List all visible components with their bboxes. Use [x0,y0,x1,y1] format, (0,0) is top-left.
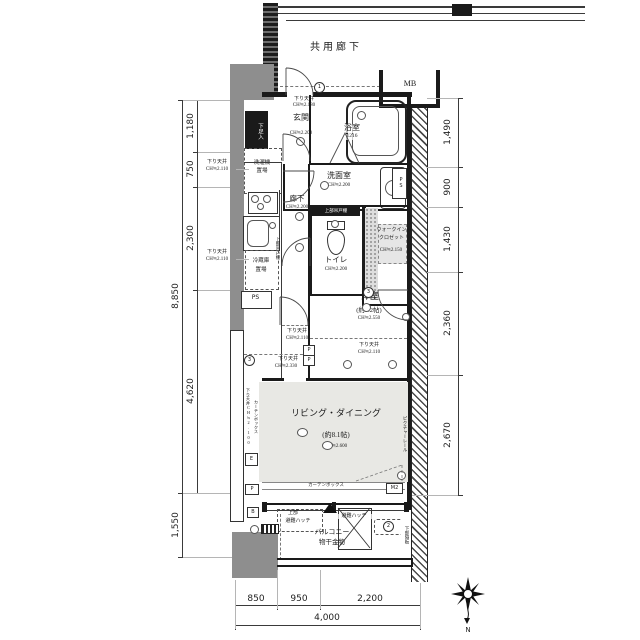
callout-b-soffit: 下り天井 [198,250,236,255]
washroom-wall [283,164,285,211]
downlight [362,303,371,312]
wic-stipple [365,208,378,299]
dim-left-1180: 1,180 [186,106,196,146]
balcony-railing-cap [411,558,413,567]
dim-bottom-950: 950 [278,594,320,604]
wall-left-lower [230,330,244,522]
mark-e-box: E [245,453,258,466]
corridor-line [278,13,585,14]
bath-drain [357,111,366,120]
mark-p: P [250,486,253,492]
dim-extension [198,152,230,153]
balcony-railing [277,558,413,560]
circled-mark-3: 3 [244,355,255,366]
balcony-railing [277,565,413,567]
downlight [320,181,329,190]
upper-hatch-label-2: 避難ハッチ [278,519,318,524]
mb-wall [436,70,440,108]
drain-grate [261,524,279,534]
dim-right-1490: 1,490 [443,112,453,152]
living-soffit-line [244,354,308,355]
toilet-label: トイレ [321,256,351,264]
dim-extension [277,570,278,609]
dim-line-left-outer [182,100,183,557]
living-size: (約8.1帖) [310,432,362,440]
washer-label-2: 置場 [244,169,280,175]
toilet-ch: CH≒2.200 [317,267,355,272]
dim-bottom-4000: 4,000 [307,613,347,623]
mark-p2: P [307,357,310,363]
callout-a-soffit: 下り天井 [198,160,236,165]
bedroom-soffit: 下り天井 [351,343,387,348]
wall-block-balcony [232,532,278,578]
dim-extension [183,100,230,101]
balcony-step-triangle [323,503,337,513]
picture-rail-label: ピクチャーレール [399,404,407,464]
hall-soffit-line [282,325,308,326]
shoe-box-label: 下足入 [252,116,262,146]
hall-label: 廊下 [284,195,310,203]
curtain-box-label: カーテンボックス [300,483,352,488]
dim-left-4620: 4,620 [186,371,196,411]
hall-soffit: 下り天井 [279,329,315,334]
upper-hatch-label-1: 上部 [281,511,305,516]
downlight [343,360,352,369]
downlight [402,313,410,321]
entrance-ch: CH≒2.200 [283,131,319,136]
compass-icon [451,577,485,624]
mark-b: B [251,509,254,515]
dim-right-2360: 2,360 [443,303,453,343]
corridor-line [286,20,585,21]
balcony-faucet [250,525,259,534]
balcony-label: バルコニー [306,529,358,537]
kitchen-sink-bowl [247,220,269,247]
living-soffit-ch: CH≒2.330 [264,364,308,369]
dim-left-1550: 1,550 [171,505,181,545]
callout-b-ch: CH≒2.110 [196,257,238,262]
dim-right-1430: 1,430 [443,219,453,259]
wic-label-1: ウォークイン [376,228,407,233]
stove-burner [257,203,264,210]
mark-m2-box: M2 [386,483,403,494]
dim-bottom-2200: 2,200 [350,594,390,604]
dim-extension [427,98,458,99]
door-arc-hall [280,297,308,325]
corridor-line [278,6,585,8]
balcony-laundry-label: 物干金物 [310,539,354,546]
dim-extension [320,570,321,609]
toilet-shelf-label: 上部吊戸棚 [312,209,360,214]
curtain-box-line [262,489,405,490]
floor-plan: 共用廊下 MB 下足入 洗濯機 置場 下り天井 CH≒2.180 玄関 CH≒2… [0,0,640,640]
escape-hatch-label: 避難ハッチ [335,514,373,519]
washroom-label: 洗面室 [320,172,358,181]
entrance-soffit-ch: CH≒2.180 [282,103,326,108]
downlight [322,441,333,450]
ps-right-label: PS [395,172,403,194]
dim-extension [427,167,458,168]
corridor-label: 共用廊下 [296,43,376,54]
dim-extension [183,493,230,494]
dim-left-750: 750 [186,149,196,189]
living-left-note-2: カーテンボックス [251,388,258,446]
corridor-end-cap [452,4,472,16]
door-arc-toilet [282,238,310,266]
hall-wall [281,164,282,378]
ps-left-label: PS [241,295,270,301]
bedroom-soffit-ch: CH≒2.110 [349,350,389,355]
entrance-step-line [244,162,282,163]
bath-wall [309,95,311,165]
balcony-left-line [280,514,281,560]
wic-label-2: クロゼット [376,236,407,241]
callout-b-leader [236,259,249,260]
bath-size: 1216 [338,134,366,140]
wic-ch: CH≒2.150 [374,248,408,253]
mark-p2-box: P [303,355,315,366]
dim-left-8850: 8,850 [171,276,181,316]
circled-mark-2: 2 [383,521,394,532]
living-ch: CH≒2.600 [312,444,360,449]
downlight [295,212,304,221]
dim-right-2670: 2,670 [443,415,453,455]
fridge-label-2: 置場 [245,268,277,274]
living-left-note-1: 下り天井CH≒2.100 [243,384,250,448]
dim-extension [198,290,230,291]
dim-line-bottom-total [235,625,420,626]
downlight [397,471,406,480]
bedroom-soffit-line [310,338,407,339]
mark-p1: P [307,347,310,353]
mark-e: E [250,456,253,462]
stove-burner [251,195,259,203]
dim-extension [412,495,458,496]
dim-line-right [458,98,459,495]
corridor-boundary-dashed [280,86,380,87]
dim-extension [235,580,236,629]
hall-ch: CH≒2.200 [280,205,314,210]
compass-n-label: N [458,626,478,634]
mark-b-box: B [247,507,259,518]
window-mullion [404,502,409,512]
mb-label: MB [392,80,428,89]
mark-p-box: P [245,484,259,495]
window-mullion [262,502,267,512]
bedroom-ch: CH≒2.550 [348,316,390,321]
dim-extension [420,583,421,629]
dim-extension [427,375,458,376]
circled-mark-1: 1 [314,82,325,93]
mark-m2: M2 [391,485,399,491]
dim-bottom-850: 850 [236,594,276,604]
callout-a-leader [236,169,249,170]
dim-line-left-inner [197,100,198,493]
balcony-partition-label: 下部隔板 [401,517,409,553]
hall-soffit-ch: CH≒2.110 [277,336,317,341]
bath-label: 浴室 [335,124,369,133]
circled-mark-3b: 3 [363,287,374,298]
dim-extension [198,187,230,188]
downlight [295,243,304,252]
living-label: リビング・ダイニング [286,409,386,419]
dim-extension [427,272,458,273]
dim-extension [183,557,232,558]
downlight [331,220,339,228]
stove-burner [263,195,271,203]
dim-line-bottom [235,605,420,606]
callout-a-ch: CH≒2.110 [196,167,238,172]
dim-right-900: 900 [443,167,453,207]
dim-left-2300: 2,300 [186,218,196,258]
entrance-soffit: 下り天井 [282,97,326,102]
downlight [296,137,305,146]
fridge-label-1: 冷蔵庫 [245,259,277,265]
downlight [297,428,308,437]
neighbor-wall-hatched [411,108,428,582]
dim-extension [427,207,458,208]
downlight [388,360,397,369]
